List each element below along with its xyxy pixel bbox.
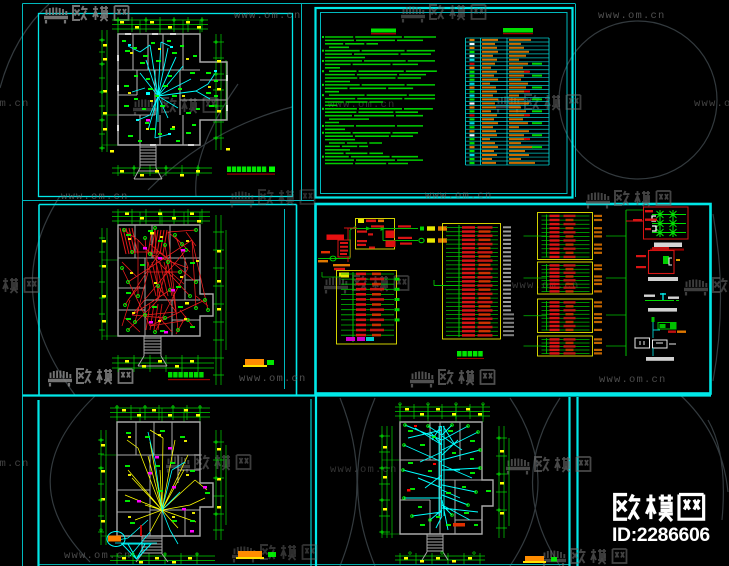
svg-text:www.om.cn: www.om.cn: [234, 10, 302, 22]
svg-text:www.om.cn: www.om.cn: [598, 10, 666, 22]
svg-text:www.om.cn: www.om.cn: [0, 458, 30, 470]
svg-text:www.om.cn: www.om.cn: [425, 190, 493, 202]
svg-text:www.om.cn: www.om.cn: [0, 98, 30, 110]
svg-text:www.om.cn: www.om.cn: [694, 98, 729, 110]
svg-text:www.om.cn: www.om.cn: [330, 464, 398, 476]
svg-text:www.om.cn: www.om.cn: [61, 191, 129, 203]
svg-text:www.om.cn: www.om.cn: [239, 373, 307, 385]
svg-text:ID:2286606: ID:2286606: [612, 524, 710, 546]
svg-text:www.om.cn: www.om.cn: [599, 374, 667, 386]
